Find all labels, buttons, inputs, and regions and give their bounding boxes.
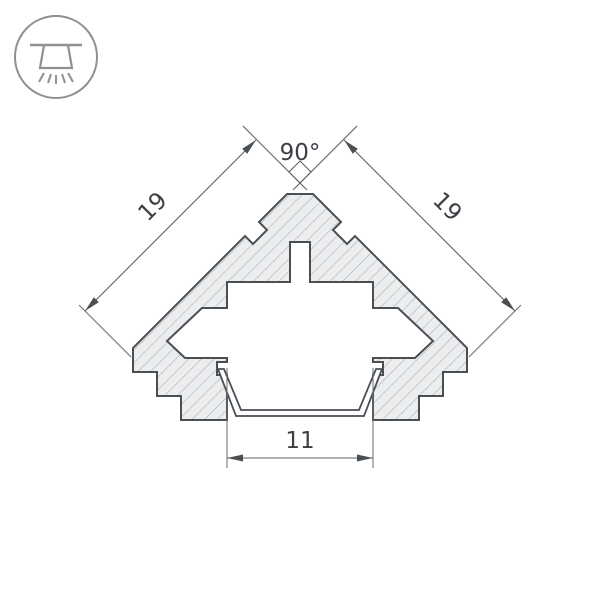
extension-line-right xyxy=(469,305,521,357)
angle-label: 90° xyxy=(280,140,321,166)
dimension-line-left xyxy=(85,140,256,311)
length-label-left: 19 xyxy=(134,188,173,227)
length-label-right: 19 xyxy=(427,188,466,227)
ceiling-light-icon xyxy=(15,16,97,98)
dimension-angle-90: 90° xyxy=(243,126,357,190)
diffuser-cover xyxy=(218,369,382,416)
arrowhead xyxy=(357,455,373,462)
profile-cross-section xyxy=(133,194,467,420)
extension-line-left xyxy=(79,305,131,357)
icon-light-rays xyxy=(39,73,73,84)
icon-circle xyxy=(15,16,97,98)
icon-lamp-shade xyxy=(40,45,72,68)
arrowhead xyxy=(227,455,243,462)
dimension-line-right xyxy=(344,140,515,311)
dimension-11-bottom: 11 xyxy=(227,368,373,468)
drawing-canvas: 90° 19 19 11 xyxy=(0,0,600,600)
profile-hatch-pattern xyxy=(133,194,467,420)
profile-technical-drawing: 90° 19 19 11 xyxy=(0,0,600,600)
width-label: 11 xyxy=(285,428,314,454)
